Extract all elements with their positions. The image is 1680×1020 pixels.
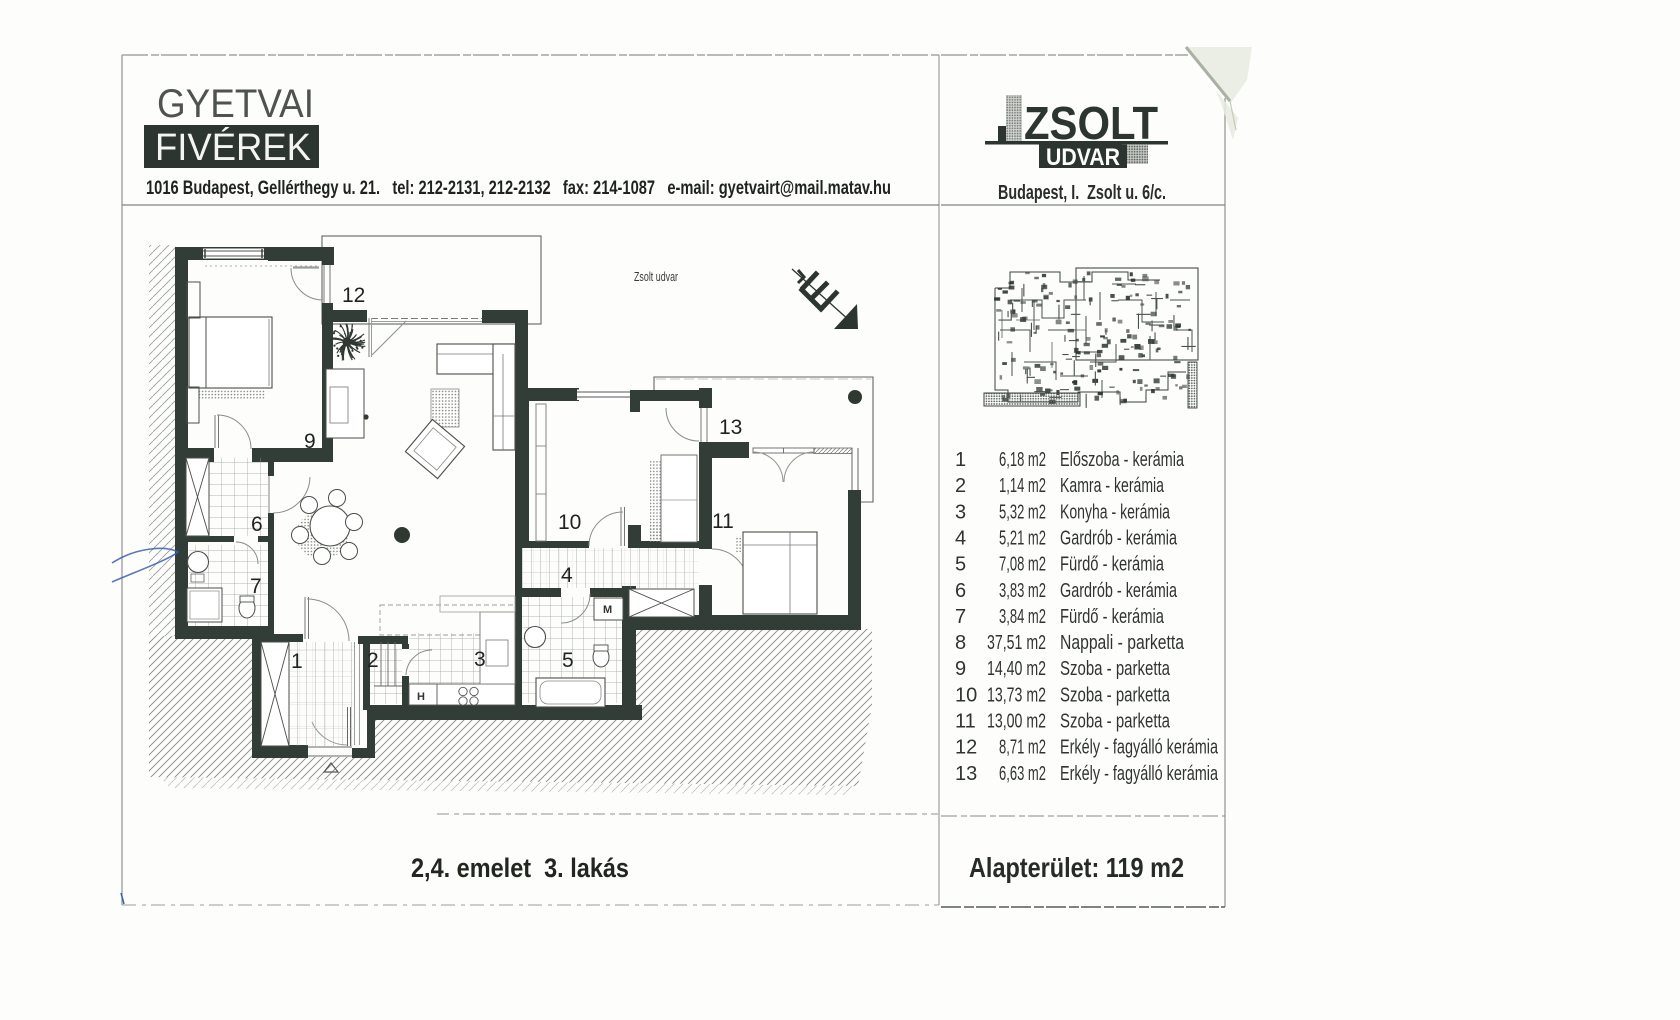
svg-text:Szoba - parketta: Szoba - parketta: [1060, 658, 1171, 680]
svg-text:GYETVAI: GYETVAI: [157, 82, 314, 126]
svg-text:11: 11: [712, 510, 734, 533]
svg-text:4: 4: [561, 564, 573, 587]
svg-text:Fürdő - kerámia: Fürdő - kerámia: [1060, 554, 1165, 576]
svg-text:Előszoba - kerámia: Előszoba - kerámia: [1060, 449, 1185, 471]
svg-text:1: 1: [291, 650, 303, 673]
svg-text:11: 11: [955, 711, 976, 733]
svg-text:FIVÉREK: FIVÉREK: [155, 126, 311, 169]
svg-text:M: M: [603, 604, 612, 616]
svg-text:13,73 m2: 13,73 m2: [987, 684, 1046, 706]
svg-text:UDVAR: UDVAR: [1046, 144, 1120, 171]
svg-text:7: 7: [955, 606, 966, 628]
svg-text:Gardrób - kerámia: Gardrób - kerámia: [1060, 527, 1178, 549]
svg-text:Szoba - parketta: Szoba - parketta: [1060, 711, 1171, 733]
svg-text:1016 Budapest, Gellérthegy u.: 1016 Budapest, Gellérthegy u. 21. tel: 2…: [146, 178, 891, 199]
svg-text:8: 8: [955, 632, 966, 654]
svg-text:5,21 m2: 5,21 m2: [999, 527, 1046, 549]
svg-text:Erkély - fagyálló kerámia: Erkély - fagyálló kerámia: [1060, 737, 1219, 759]
svg-text:9: 9: [955, 658, 966, 680]
svg-text:5,32 m2: 5,32 m2: [999, 501, 1046, 523]
svg-text:10: 10: [955, 684, 977, 706]
svg-text:1: 1: [955, 449, 966, 471]
svg-text:Konyha - kerámia: Konyha - kerámia: [1060, 501, 1171, 523]
svg-text:Budapest, I. Zsolt u. 6/c.: Budapest, I. Zsolt u. 6/c.: [998, 182, 1166, 204]
svg-text:3: 3: [955, 501, 966, 523]
svg-text:8,71 m2: 8,71 m2: [999, 737, 1046, 759]
svg-text:2: 2: [367, 649, 379, 672]
svg-text:6,18 m2: 6,18 m2: [999, 449, 1046, 471]
svg-text:7,08 m2: 7,08 m2: [999, 554, 1046, 576]
svg-text:3: 3: [474, 648, 486, 671]
svg-text:6,63 m2: 6,63 m2: [999, 763, 1046, 785]
svg-text:9: 9: [304, 430, 316, 453]
svg-text:3,83 m2: 3,83 m2: [999, 580, 1046, 602]
svg-text:4: 4: [955, 527, 966, 549]
svg-text:10: 10: [558, 511, 581, 534]
svg-text:13: 13: [955, 763, 977, 785]
svg-text:12: 12: [955, 737, 977, 759]
svg-text:14,40 m2: 14,40 m2: [987, 658, 1046, 680]
svg-text:2,4. emelet 3. lakás: 2,4. emelet 3. lakás: [411, 853, 629, 883]
svg-text:12: 12: [342, 284, 365, 307]
svg-text:Szoba - parketta: Szoba - parketta: [1060, 684, 1171, 706]
svg-text:Erkély - fagyálló kerámia: Erkély - fagyálló kerámia: [1060, 763, 1219, 785]
svg-text:Alapterület: 119 m2: Alapterület: 119 m2: [969, 852, 1184, 883]
svg-text:Zsolt udvar: Zsolt udvar: [634, 270, 678, 284]
svg-text:3,84 m2: 3,84 m2: [999, 606, 1046, 628]
svg-text:13: 13: [719, 416, 742, 439]
svg-text:5: 5: [955, 554, 966, 576]
svg-text:2: 2: [955, 475, 966, 497]
svg-text:Gardrób - kerámia: Gardrób - kerámia: [1060, 580, 1178, 602]
svg-text:Nappali - parketta: Nappali - parketta: [1060, 632, 1185, 654]
svg-text:Kamra - kerámia: Kamra - kerámia: [1060, 475, 1165, 497]
svg-text:37,51 m2: 37,51 m2: [987, 632, 1046, 654]
svg-text:6: 6: [251, 513, 263, 536]
svg-text:H: H: [417, 691, 425, 703]
svg-text:13,00 m2: 13,00 m2: [987, 711, 1046, 733]
svg-text:6: 6: [955, 580, 966, 602]
svg-text:7: 7: [250, 575, 262, 598]
svg-text:1,14 m2: 1,14 m2: [999, 475, 1046, 497]
svg-text:5: 5: [562, 649, 574, 672]
svg-text:Fürdő - kerámia: Fürdő - kerámia: [1060, 606, 1165, 628]
